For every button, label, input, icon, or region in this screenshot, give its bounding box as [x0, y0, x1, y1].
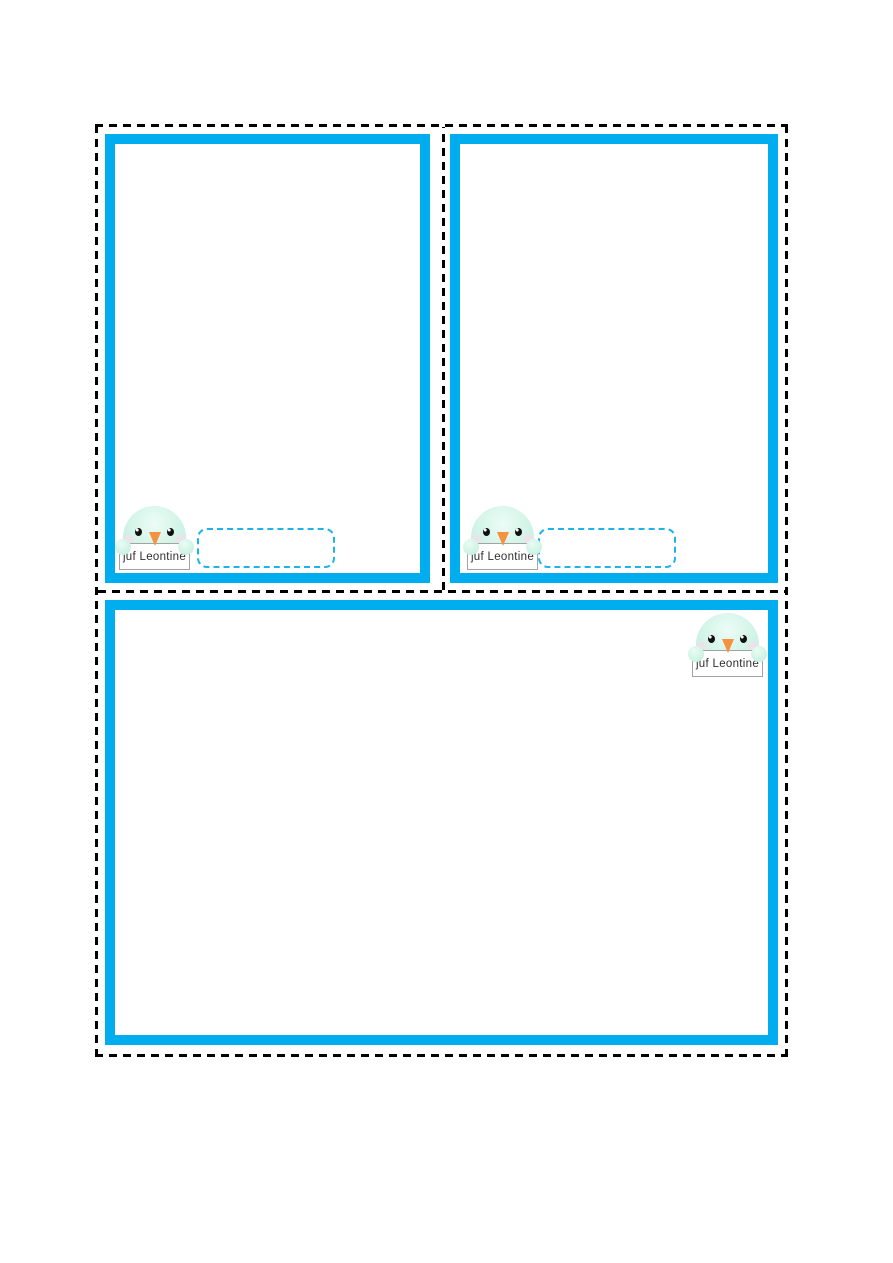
bird-eye-icon [515, 528, 522, 536]
bird-hand-icon [463, 539, 479, 555]
bird-beak-icon [497, 532, 509, 546]
name-write-box[interactable] [197, 528, 335, 568]
bird-hand-icon [526, 539, 542, 555]
bird-hand-icon [688, 646, 704, 662]
page: juf Leontine juf Leontine [0, 0, 893, 1263]
bird-beak-icon [722, 639, 734, 653]
bird-hand-icon [115, 539, 131, 555]
card-frame-top-left: juf Leontine [105, 134, 430, 583]
bird-mascot-icon: juf Leontine [692, 613, 763, 677]
cut-divider-horizontal [98, 590, 785, 593]
bird-eye-icon [135, 528, 142, 536]
mascot-name-label: juf Leontine [471, 551, 534, 563]
bird-beak-icon [149, 532, 161, 546]
bird-mascot-icon: juf Leontine [119, 506, 190, 570]
bird-eye-icon [483, 528, 490, 536]
bird-eye-icon [708, 635, 715, 643]
bird-hand-icon [178, 539, 194, 555]
bird-hand-icon [751, 646, 767, 662]
bird-eye-icon [740, 635, 747, 643]
cut-divider-vertical [442, 127, 445, 590]
mascot-name-label: juf Leontine [696, 658, 759, 670]
bird-mascot-icon: juf Leontine [467, 506, 538, 570]
bird-eye-icon [167, 528, 174, 536]
name-write-box[interactable] [538, 528, 676, 568]
card-frame-bottom: juf Leontine [105, 600, 778, 1045]
card-frame-top-right: juf Leontine [450, 134, 778, 583]
mascot-name-label: juf Leontine [123, 551, 186, 563]
